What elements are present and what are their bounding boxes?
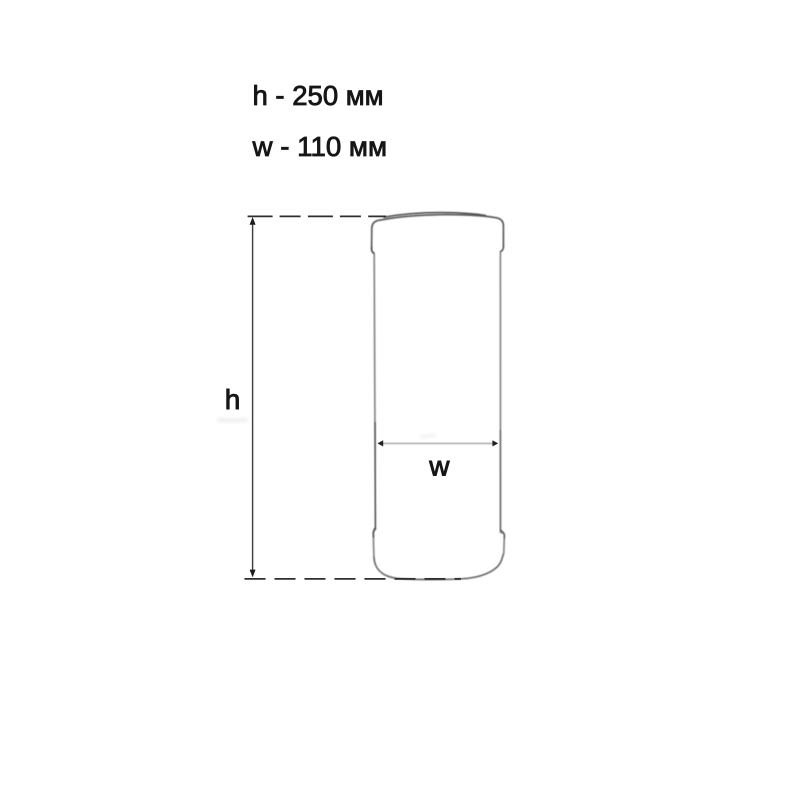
svg-text:w - 110 мм: w - 110 мм [252, 131, 388, 162]
svg-text:w: w [428, 451, 450, 482]
svg-text:h - 250 мм: h - 250 мм [253, 80, 384, 111]
svg-text:h: h [225, 384, 241, 415]
